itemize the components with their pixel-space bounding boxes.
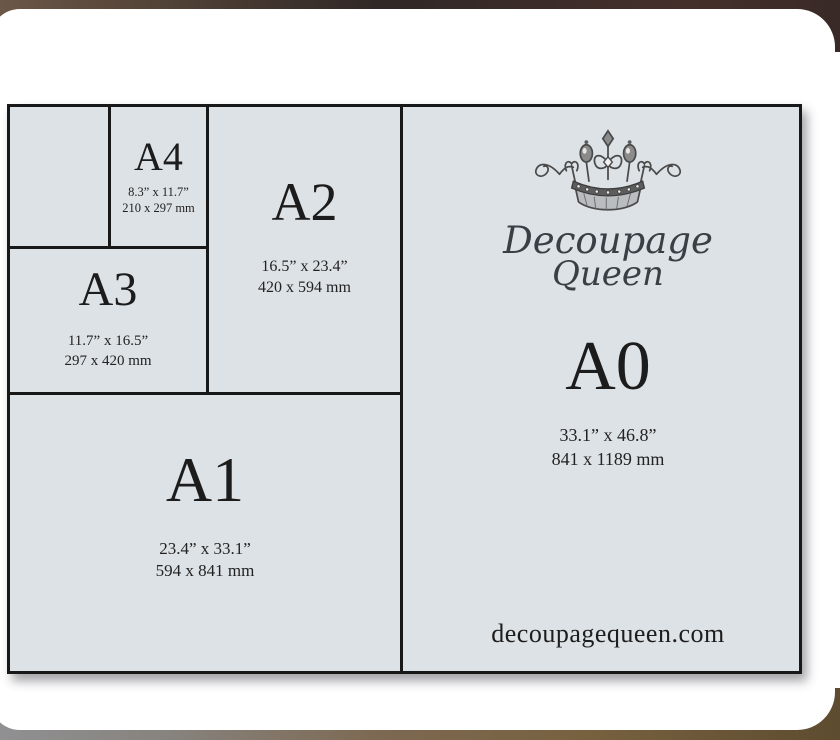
brand-name-line1: Decoupage (503, 223, 713, 258)
size-inches-a3: 11.7” x 16.5” (68, 333, 148, 349)
size-cell-a2: A2 16.5” x 23.4” 420 x 594 mm (209, 107, 400, 392)
size-cell-empty (10, 107, 108, 246)
size-dims-a4: 8.3” x 11.7” 210 x 297 mm (122, 184, 195, 217)
size-dims-a1: 23.4” x 33.1” 594 x 841 mm (156, 538, 255, 582)
size-label-a2: A2 (272, 175, 338, 229)
size-dims-a3: 11.7” x 16.5” 297 x 420 mm (64, 332, 151, 371)
size-mm-a3: 297 x 420 mm (64, 353, 151, 369)
size-mm-a4: 210 x 297 mm (122, 201, 195, 215)
size-dims-a2: 16.5” x 23.4” 420 x 594 mm (258, 257, 351, 299)
size-inches-a0: 33.1” x 46.8” (560, 425, 657, 445)
size-cell-a1: A1 23.4” x 33.1” 594 x 841 mm (10, 395, 400, 671)
size-inches-a4: 8.3” x 11.7” (128, 185, 189, 199)
size-label-a0: A0 (565, 332, 651, 402)
size-comparison-diagram: A4 8.3” x 11.7” 210 x 297 mm A2 16.5” x … (7, 104, 802, 674)
paper-size-chart-image: A4 8.3” x 11.7” 210 x 297 mm A2 16.5” x … (0, 0, 840, 740)
size-cell-a3: A3 11.7” x 16.5” 297 x 420 mm (10, 249, 206, 392)
brand-name-line2: Queen (503, 258, 713, 290)
crown-icon (524, 117, 692, 221)
size-mm-a1: 594 x 841 mm (156, 561, 255, 580)
size-cell-a0: Decoupage Queen A0 33.1” x 46.8” 841 x 1… (403, 107, 799, 671)
brand-name: Decoupage Queen (503, 223, 713, 290)
size-mm-a0: 841 x 1189 mm (552, 449, 665, 469)
size-cell-a4: A4 8.3” x 11.7” 210 x 297 mm (111, 107, 206, 246)
size-dims-a0: 33.1” x 46.8” 841 x 1189 mm (552, 424, 665, 471)
size-label-a4: A4 (134, 137, 183, 177)
size-block-a0: A0 33.1” x 46.8” 841 x 1189 mm (552, 332, 665, 471)
size-inches-a2: 16.5” x 23.4” (261, 258, 347, 275)
brand-website: decoupagequeen.com (491, 619, 725, 649)
size-inches-a1: 23.4” x 33.1” (159, 539, 251, 558)
size-label-a3: A3 (79, 266, 138, 314)
brand-logo: Decoupage Queen (503, 117, 713, 290)
product-card: A4 8.3” x 11.7” 210 x 297 mm A2 16.5” x … (0, 9, 835, 730)
size-label-a1: A1 (166, 448, 244, 512)
size-mm-a2: 420 x 594 mm (258, 279, 351, 296)
